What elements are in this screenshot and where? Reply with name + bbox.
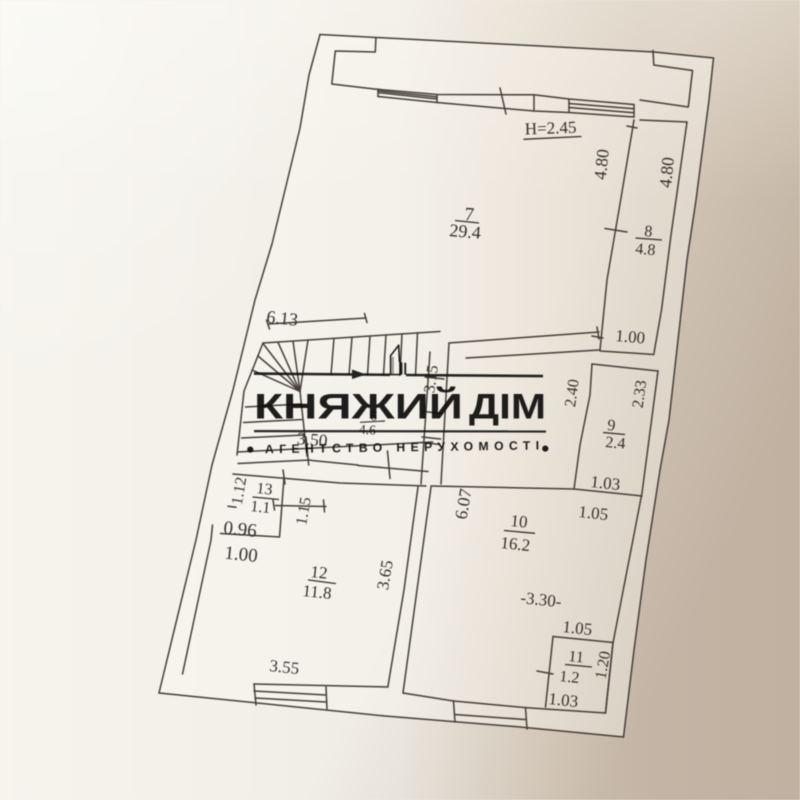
svg-text:4.80: 4.80 — [590, 148, 613, 181]
svg-text:4.8: 4.8 — [635, 241, 656, 260]
svg-text:13: 13 — [256, 480, 274, 499]
svg-text:8: 8 — [644, 223, 653, 241]
svg-text:4.80: 4.80 — [655, 156, 678, 189]
svg-text:H=2.45: H=2.45 — [524, 118, 576, 139]
svg-text:ДІМ: ДІМ — [469, 388, 546, 427]
svg-text:1.00: 1.00 — [615, 326, 646, 348]
svg-text:1.05: 1.05 — [578, 502, 610, 524]
svg-text:16.2: 16.2 — [500, 533, 532, 555]
svg-text:0.96: 0.96 — [222, 518, 257, 542]
svg-text:1.2: 1.2 — [559, 668, 581, 687]
svg-text:1.05: 1.05 — [562, 617, 594, 639]
svg-text:1.03: 1.03 — [548, 689, 580, 711]
svg-text:11: 11 — [568, 648, 585, 667]
svg-text:9: 9 — [607, 417, 616, 435]
svg-text:2.4: 2.4 — [605, 434, 626, 453]
svg-text:КНЯЖИЙ: КНЯЖИЙ — [254, 385, 463, 426]
svg-text:12: 12 — [310, 562, 329, 583]
svg-text:1.1: 1.1 — [250, 498, 272, 517]
svg-text:1.03: 1.03 — [590, 472, 622, 494]
svg-text:11.8: 11.8 — [302, 581, 333, 603]
svg-text:1.00: 1.00 — [223, 543, 258, 567]
svg-text:10: 10 — [510, 511, 529, 532]
svg-text:6.13: 6.13 — [266, 307, 299, 330]
svg-text:3.55: 3.55 — [269, 656, 301, 678]
svg-text:29.4: 29.4 — [449, 220, 482, 243]
